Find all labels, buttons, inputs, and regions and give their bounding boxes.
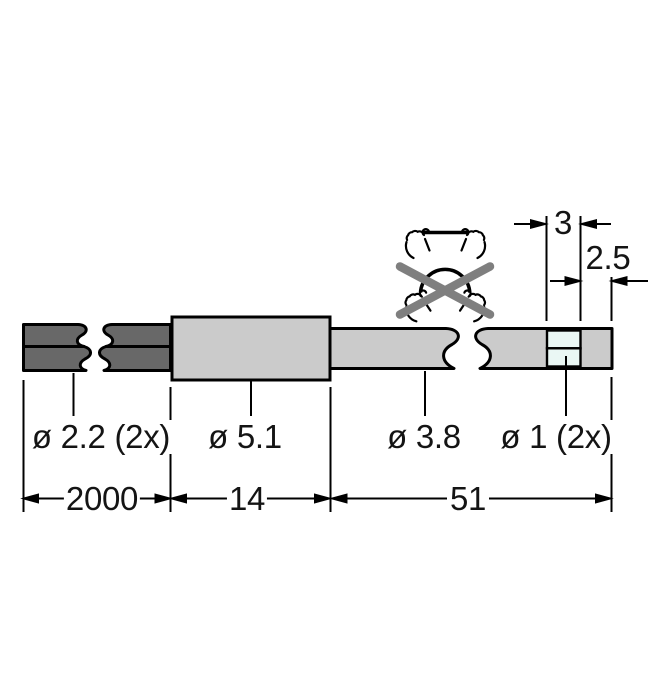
- fiber-window-top: [547, 331, 581, 349]
- arrowhead: [24, 495, 38, 503]
- arrowhead: [172, 495, 186, 503]
- duplex-strand-top-right: [104, 325, 171, 347]
- prohibition-x-icon: [400, 267, 490, 315]
- duplex-strand-top-left: [24, 325, 87, 347]
- label-fiber-cable-diameter: ø 3.8: [385, 420, 463, 454]
- duplex-strand-bottom-right: [99, 347, 170, 371]
- label-duplex-cable-diameter: ø 2.2 (2x): [30, 420, 172, 454]
- label-sleeve-diameter: ø 5.1: [206, 420, 284, 454]
- duplex-cable: [24, 325, 171, 371]
- fiber-cable-segment-1: [330, 329, 458, 369]
- duplex-strand-bottom-left: [24, 347, 91, 371]
- label-tip-window-width: 3: [552, 206, 574, 240]
- arrowhead: [566, 277, 580, 284]
- label-duplex-cable-length: 2000: [64, 482, 140, 516]
- label-fiber-tip-diameter: ø 1 (2x): [498, 420, 613, 454]
- label-tip-end-offset: 2.5: [584, 241, 633, 275]
- arrowhead: [315, 495, 329, 503]
- sleeve-body: [172, 317, 330, 380]
- arrowhead: [596, 495, 610, 503]
- arrowhead: [531, 220, 545, 227]
- fiber-tip-windows: [547, 331, 581, 367]
- arrowhead: [582, 220, 596, 227]
- do-not-bend-icon: [400, 229, 490, 323]
- fiber-cable-segment-2: [476, 329, 612, 369]
- technical-drawing-canvas: ø 2.2 (2x) ø 5.1 ø 3.8 ø 1 (2x) 2000 14 …: [0, 0, 653, 700]
- arrowhead: [613, 277, 627, 284]
- fiber-cable-dimension-drawing: [0, 0, 653, 700]
- arrowhead: [333, 495, 347, 503]
- arrowhead: [156, 495, 170, 503]
- fiber-window-bottom: [547, 348, 581, 366]
- label-sleeve-length: 14: [227, 482, 267, 516]
- hands-holding-straight-fiber-icon: [406, 229, 485, 258]
- label-fiber-section-length: 51: [448, 482, 488, 516]
